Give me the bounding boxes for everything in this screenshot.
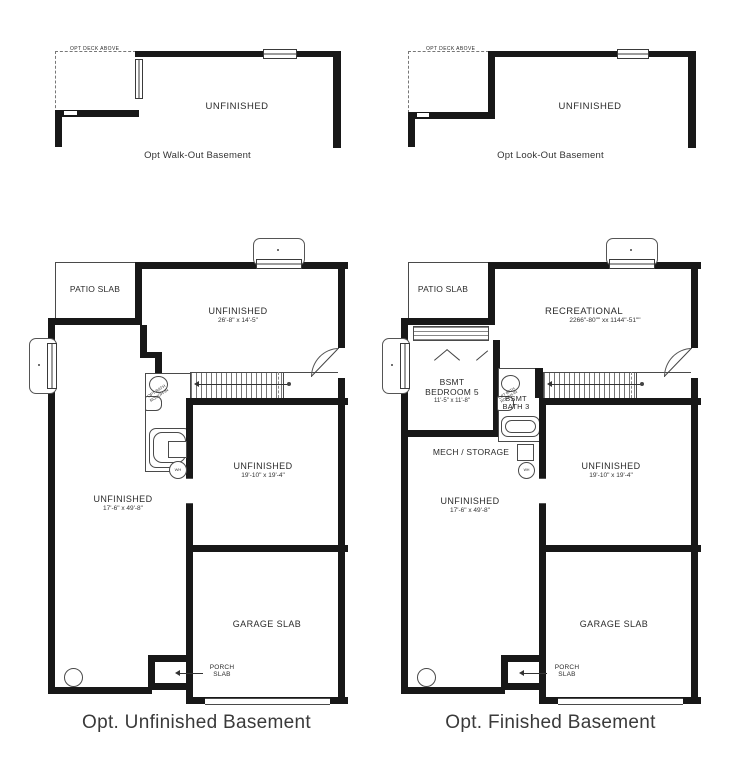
wall [135,51,341,57]
wall-notch [64,111,77,115]
window-icon [263,49,297,59]
wall [539,545,701,552]
garage-slab-label: GARAGE SLAB [549,619,679,629]
opt-deck-label: OPT DECK ABOVE [426,47,475,53]
stairs-icon [543,372,637,400]
room-label-unfinished-right: UNFINISHED [546,461,676,471]
wall [691,262,698,703]
wall [55,110,62,147]
window-icon [400,343,410,389]
arrowhead [194,381,199,387]
room-label-unfinished-left: UNFINISHED [63,494,183,504]
wall [488,262,495,318]
door-opening-mark [446,349,460,361]
garage-door-icon [558,698,683,705]
wall [186,398,348,405]
room-dims-left: 17'-6" x 49'-8" [410,507,530,514]
arrow-origin-dot [640,382,644,386]
well-mark [38,364,40,366]
opt-deck-outline [408,51,489,113]
room-dims-right: 19'-10" x 19'-4" [198,472,328,479]
bathtub-basin [505,420,536,433]
window-icon [256,259,302,269]
door-opening [691,348,698,378]
patio-slab-label: PATIO SLAB [407,285,479,295]
garage-slab-label: GARAGE SLAB [202,619,332,629]
wall [140,325,147,352]
patio-slab-label: PATIO SLAB [59,285,131,295]
wall [135,262,348,269]
cased-opening [186,478,193,504]
stairs-icon [190,372,284,400]
wall [688,51,696,148]
well-mark [391,364,393,366]
wall [48,318,142,325]
furnace-icon [517,444,534,461]
wall [501,683,546,690]
wall [401,687,505,694]
bedroom-label-line2: BEDROOM 5 [412,388,492,398]
wall [408,112,415,147]
room-label-unfinished: UNFINISHED [525,102,655,113]
wall [539,398,701,405]
well-mark [630,249,632,251]
porch-arrow [523,673,547,674]
plan-opt-unfinished-basement: PATIO SLAB OPT BATH ROUGH-IN [45,236,348,706]
walkout-door-icon [135,59,143,99]
door-opening [338,348,345,378]
stair-direction-arrow [198,384,288,385]
caption-walkout: Opt Walk-Out Basement [50,150,345,161]
wall [401,430,500,437]
wall-notch [417,113,429,117]
wall [148,683,193,690]
porch-slab-label: PORCH SLAB [203,664,241,679]
opt-deck-label: OPT DECK ABOVE [70,47,119,53]
arrow-origin-dot [287,382,291,386]
porch-slab-label: PORCH SLAB [548,664,586,679]
door-opening-mark [476,350,488,360]
wall [48,687,152,694]
wall [401,318,495,325]
room-dims-top: 26'-8" x 14'-5" [173,317,303,324]
room-label-unfinished-left: UNFINISHED [410,496,530,506]
bath-label-line2: BATH 3 [496,403,536,412]
wall [488,51,695,57]
window-icon [617,49,649,59]
wall [338,262,345,703]
door-opening-mark [434,349,448,361]
stair-direction-arrow [551,384,641,385]
arrowhead [175,670,180,676]
porch-arrow [179,673,203,674]
sump-pit-icon [64,668,83,687]
opt-deck-outline [55,51,136,113]
water-heater-icon: WH [518,462,535,479]
caption-finished: Opt. Finished Basement [398,712,703,734]
caption-lookout: Opt Look-Out Basement [398,150,703,161]
furnace-icon [168,441,187,458]
cased-opening [539,478,546,504]
room-label-unfinished-right: UNFINISHED [198,461,328,471]
wall [488,262,701,269]
arrowhead [519,670,524,676]
stair-break-line [278,372,279,398]
room-label-unfinished: UNFINISHED [172,102,302,113]
sump-pit-icon [417,668,436,687]
room-dims-left: 17'-6" x 49'-8" [63,505,183,512]
room-dims-right: 19'-10" x 19'-4" [546,472,676,479]
floor-plan-sheet: OPT DECK ABOVE UNFINISHED Opt Walk-Out B… [0,0,731,768]
mech-storage-label: MECH / STORAGE [416,448,526,458]
wall [135,262,142,318]
room-label-unfinished-top: UNFINISHED [173,306,303,316]
bedroom-dims: 11'-5" x 11'-8" [412,398,492,405]
water-heater-icon: WH [169,461,187,479]
wall [186,545,348,552]
wall [155,358,162,373]
wall [535,368,543,398]
well-mark [277,249,279,251]
wall [333,51,341,148]
arrowhead [547,381,552,387]
garage-door-icon [205,698,330,705]
plan-opt-finished-basement: PATIO SLAB BSMT BEDROOM 5 11'-5" x 11'-8… [398,236,703,706]
wall [488,51,495,117]
window-icon [609,259,655,269]
sliding-door-window-band [413,326,489,341]
window-icon [47,343,57,389]
recreational-dims: 2266"-80"" xx 1144"-51"" [545,317,665,324]
stair-break-line [631,372,632,398]
caption-unfinished: Opt. Unfinished Basement [45,712,348,734]
